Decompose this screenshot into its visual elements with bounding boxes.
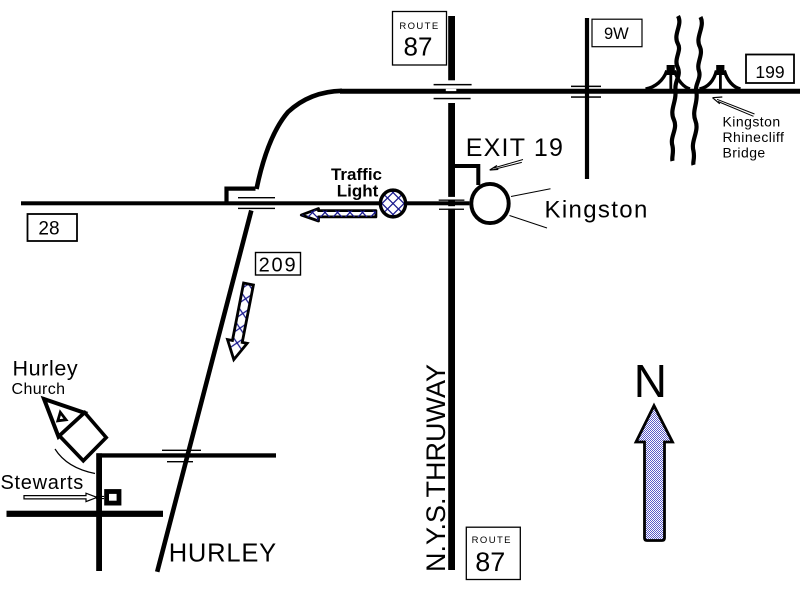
svg-text:209: 209 <box>259 254 298 276</box>
svg-text:87: 87 <box>475 547 505 577</box>
svg-text:Light: Light <box>337 182 379 201</box>
svg-text:ROUTE: ROUTE <box>472 535 512 546</box>
svg-text:199: 199 <box>755 62 784 82</box>
svg-text:Kingston: Kingston <box>545 197 649 224</box>
svg-text:Kingston: Kingston <box>723 114 781 130</box>
svg-text:Stewarts: Stewarts <box>1 472 84 494</box>
svg-text:HURLEY: HURLEY <box>169 540 277 568</box>
svg-text:Church: Church <box>12 381 66 398</box>
svg-text:87: 87 <box>404 31 433 61</box>
svg-text:Hurley: Hurley <box>13 357 79 381</box>
svg-text:28: 28 <box>38 219 59 240</box>
svg-text:N.Y.S.THRUWAY: N.Y.S.THRUWAY <box>421 364 451 572</box>
svg-text:Rhinecliff: Rhinecliff <box>723 129 785 145</box>
svg-text:EXIT 19: EXIT 19 <box>466 134 564 162</box>
svg-text:Bridge: Bridge <box>723 144 766 160</box>
svg-text:N: N <box>634 355 667 407</box>
svg-text:9W: 9W <box>604 25 629 43</box>
